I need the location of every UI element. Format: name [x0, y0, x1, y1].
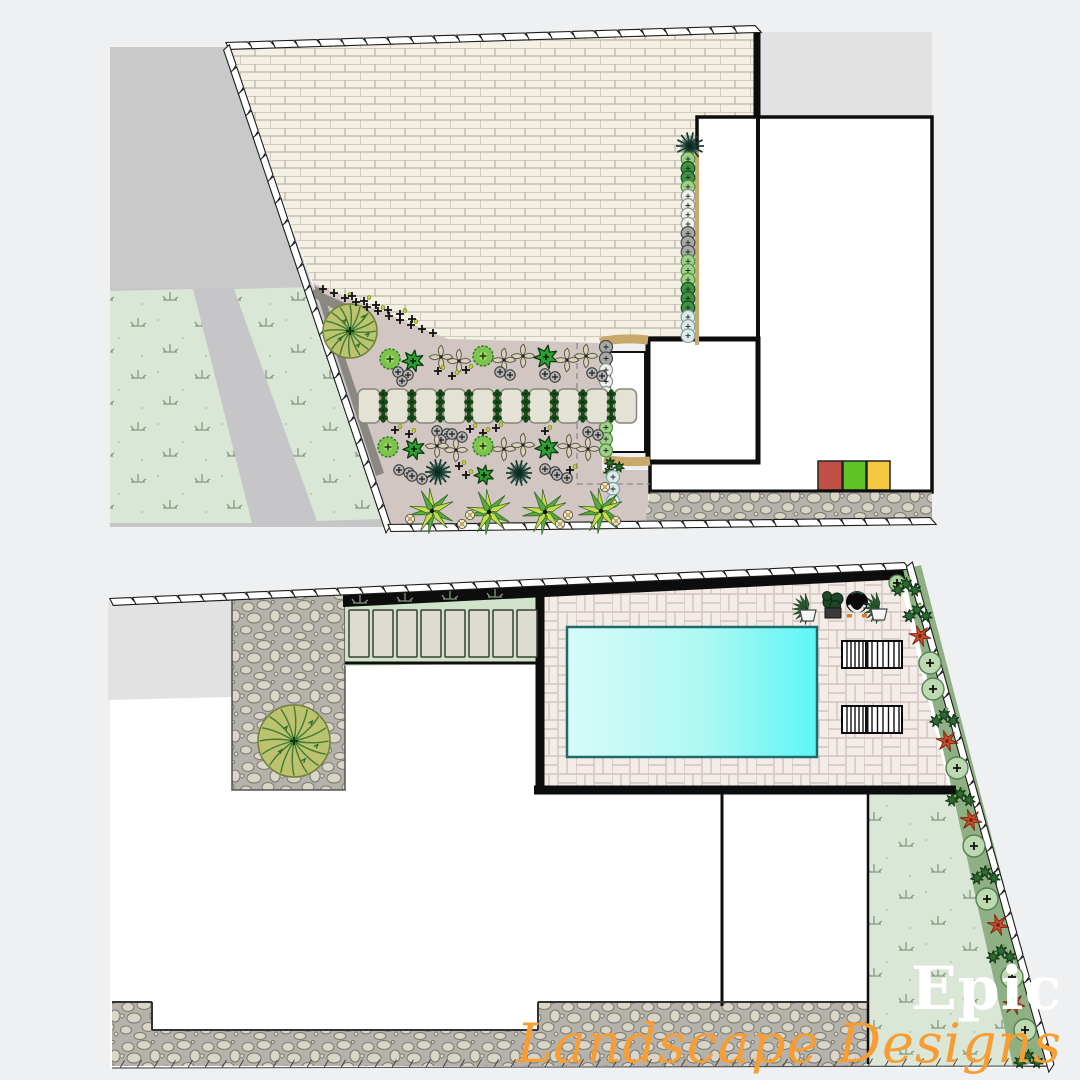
bin-green: [843, 461, 866, 490]
sun-lounger: [842, 641, 902, 668]
round-tree-icon: [922, 678, 944, 700]
round-tree-icon: [919, 652, 941, 674]
small-flower-icon: [457, 519, 466, 528]
stepping-stone: [444, 389, 466, 423]
small-flower-icon: [405, 514, 414, 523]
round-shrub-icon: [378, 437, 398, 457]
neighbor-building: [108, 597, 232, 700]
stepping-stone: [501, 389, 523, 423]
hedge-plant-icon: [681, 329, 695, 343]
stepping-stone: [615, 389, 637, 423]
stepping-stone: [472, 389, 494, 423]
small-flower-icon: [465, 510, 474, 519]
top-plan-view: [110, 26, 936, 536]
paver: [421, 610, 441, 657]
paver: [373, 610, 393, 657]
agave-plant-icon: [258, 705, 330, 777]
agave-plant-icon: [323, 304, 377, 358]
sun-lounger: [842, 706, 902, 733]
stepping-stone: [415, 389, 437, 423]
plan-drawing: [0, 0, 1080, 1080]
landscape-plan-poster: Epic Landscape Designs: [0, 0, 1080, 1080]
round-tree-icon: [946, 757, 968, 779]
round-tree-icon: [963, 835, 985, 857]
paver: [517, 610, 537, 657]
bottom-plan-view: [108, 562, 1054, 1072]
stepping-stone: [558, 389, 580, 423]
stepping-stone: [529, 389, 551, 423]
round-tree-icon: [1001, 966, 1023, 988]
stepping-stone: [387, 389, 409, 423]
round-shrub-icon: [473, 436, 493, 456]
stepping-stone: [586, 389, 608, 423]
round-tree-icon: [1014, 1019, 1036, 1041]
paver: [469, 610, 489, 657]
paver: [493, 610, 513, 657]
garden-room: [648, 339, 758, 462]
bin-yellow: [867, 461, 890, 490]
small-flower-icon: [600, 482, 609, 491]
round-shrub-icon: [380, 349, 400, 369]
fence-panel: [909, 518, 936, 525]
round-shrub-icon: [473, 346, 493, 366]
bin-red: [818, 461, 842, 490]
fence-panel: [734, 26, 762, 33]
paver: [349, 610, 369, 657]
neighbor-building: [760, 32, 932, 117]
stepping-stone: [358, 389, 380, 423]
small-flower-icon: [563, 510, 572, 519]
pool: [567, 627, 817, 757]
hedge-plant-icon: [607, 471, 620, 484]
potted-plant-icon: [823, 592, 844, 619]
paver: [397, 610, 417, 657]
paver: [445, 610, 465, 657]
small-flower-icon: [555, 519, 564, 528]
hedge-plant-icon: [600, 444, 613, 457]
small-flower-icon: [611, 516, 620, 525]
round-tree-icon: [976, 888, 998, 910]
